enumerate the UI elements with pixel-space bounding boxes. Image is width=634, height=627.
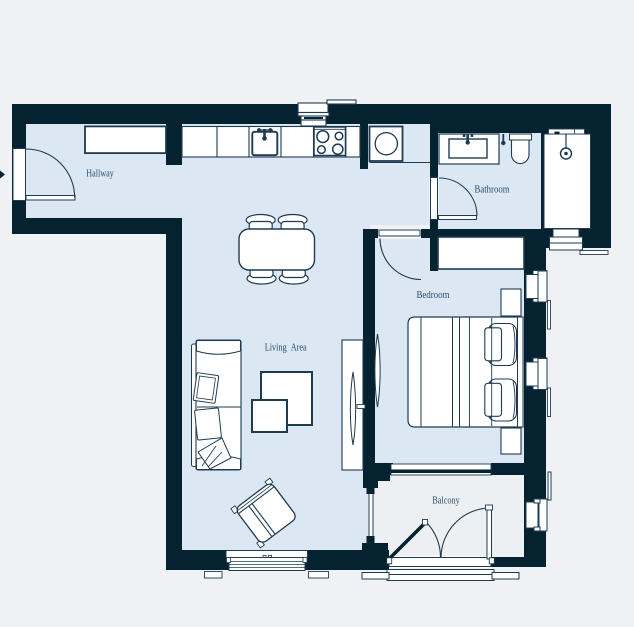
svg-text:Hallway: Hallway: [86, 169, 114, 180]
svg-text:Bedroom: Bedroom: [417, 290, 450, 301]
svg-text:Bathroom: Bathroom: [475, 184, 510, 195]
svg-text:Balcony: Balcony: [432, 495, 460, 506]
svg-text:Living Area: Living Area: [265, 342, 307, 353]
